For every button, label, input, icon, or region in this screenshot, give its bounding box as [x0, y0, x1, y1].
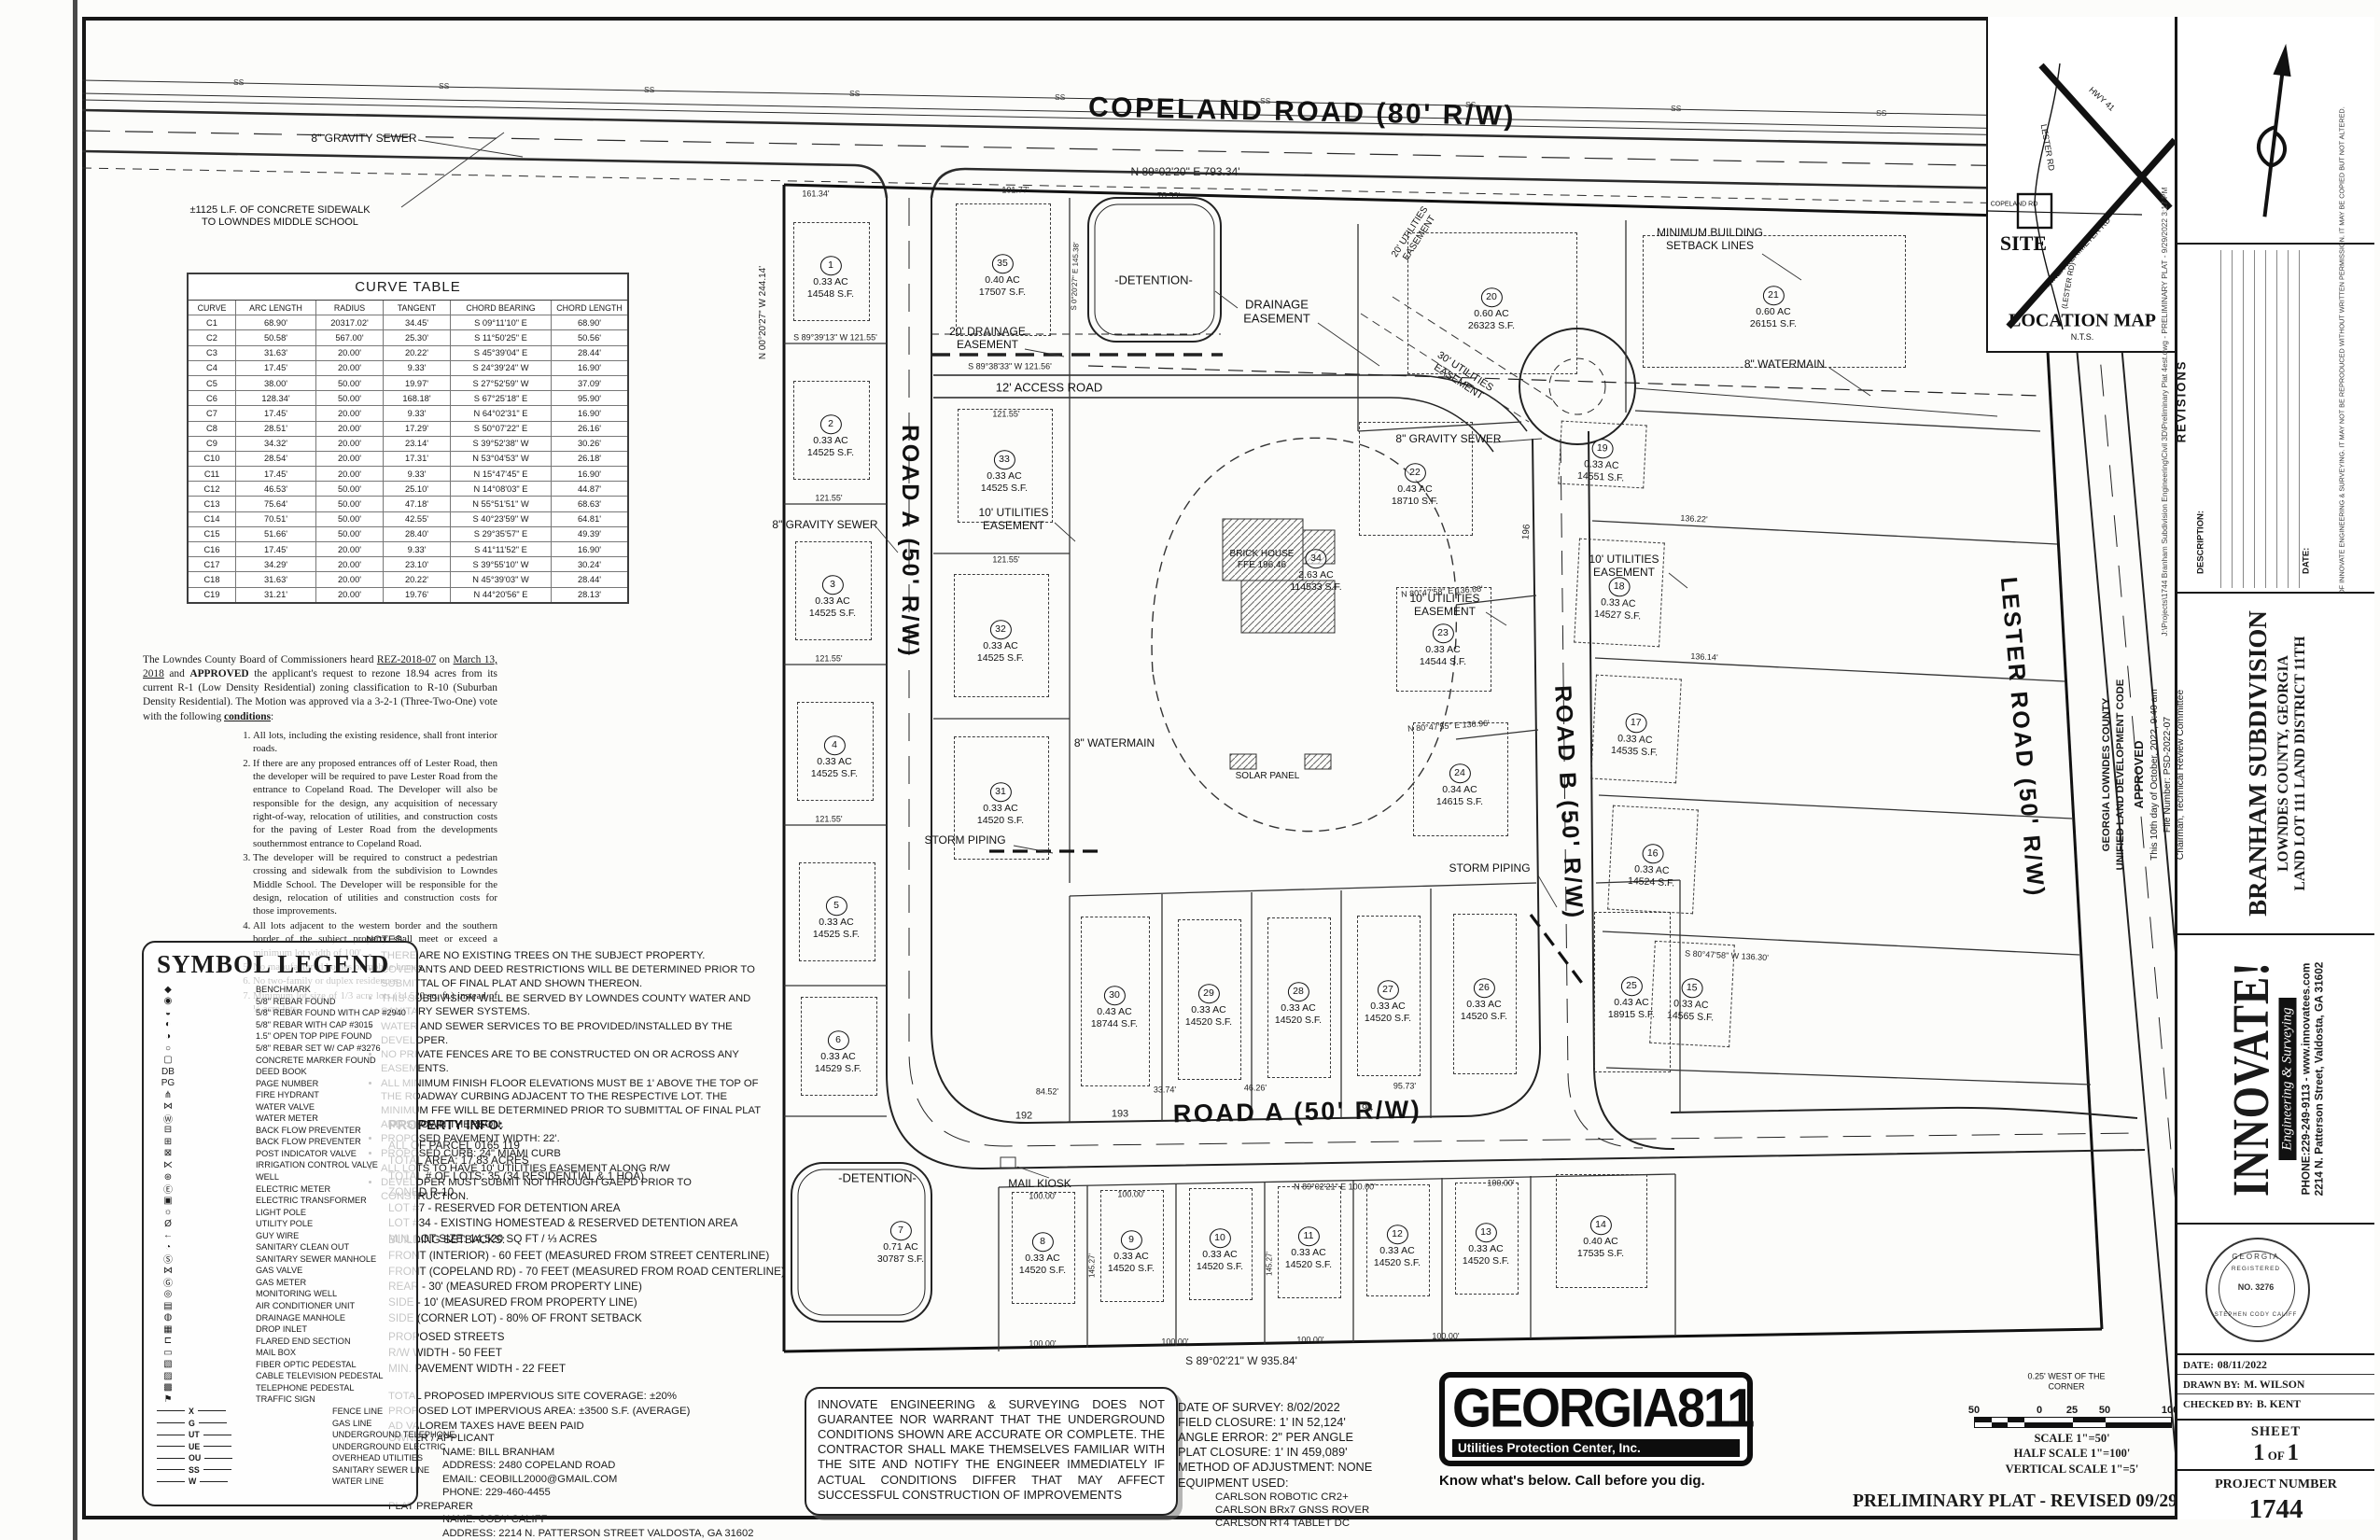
- plat-label: 0.25' WEST OF THE CORNER: [2028, 1371, 2106, 1391]
- lot-marker: 120.33 AC14520 S.F.: [1374, 1225, 1421, 1269]
- legend-item: ⋉IRRIGATION CONTROL VALVE: [157, 1159, 411, 1171]
- lot-number: 16: [1642, 844, 1664, 864]
- curve-table-row: C250.58'567.00'25.30'S 11°50'25" E50.56': [189, 329, 627, 344]
- seal-number: NO. 3276: [2238, 1282, 2275, 1292]
- scale-note: VERTICAL SCALE 1"=5': [1967, 1462, 2177, 1477]
- legend-item: ◎MONITORING WELL: [157, 1288, 411, 1300]
- legend-item: ☼LIGHT POLE: [157, 1206, 411, 1218]
- legend-item: ▨CABLE TELEVISION PEDESTAL: [157, 1370, 411, 1382]
- lot-acreage: 0.33 AC: [1461, 999, 1507, 1011]
- project-title-lines: BRANHAM SUBDIVISIONLOWNDES COUNTY, GEORG…: [2244, 595, 2309, 931]
- sanitary-sewer-mark: SS: [1876, 107, 1887, 117]
- lot-number: 14: [1589, 1215, 1611, 1235]
- lot-number: 28: [1287, 982, 1309, 1001]
- lot-square-feet: 14525 S.F.: [813, 929, 860, 941]
- plat-preparer-title: PLAT PREPARER: [388, 1500, 753, 1514]
- scale-note: HALF SCALE 1"=100': [1967, 1446, 2177, 1461]
- scale-bar: 5002550100 SCALE 1"=50'HALF SCALE 1"=100…: [1967, 1405, 2177, 1477]
- lot-marker: 170.33 AC14535 S.F.: [1611, 712, 1660, 759]
- dimension-label: 101.77': [1001, 186, 1029, 196]
- lot-square-feet: 114533 S.F.: [1290, 581, 1341, 594]
- lot-marker: 260.33 AC14520 S.F.: [1461, 978, 1507, 1023]
- lot-acreage: 0.33 AC: [811, 756, 858, 768]
- dimension-label: 121.55': [815, 654, 842, 665]
- plat-label: SOLAR PANEL: [1236, 771, 1300, 782]
- curve-table-row: C1028.54'20.00'17.31'N 53°04'53" W26.18': [189, 451, 627, 466]
- dimension-label: 100.00': [1432, 1332, 1459, 1342]
- legend-symbol-icon: DB: [157, 1067, 179, 1077]
- legend-symbol-icon: Ⓖ: [157, 1275, 179, 1289]
- plat-label: 10' UTILITIES EASEMENT: [979, 506, 1049, 532]
- revisions-date-header: DATE:: [2302, 257, 2312, 574]
- lot-marker: 10.33 AC14548 S.F.: [807, 256, 854, 301]
- lot-square-feet: 14615 S.F.: [1436, 796, 1483, 808]
- legend-item: ▤AIR CONDITIONER UNIT: [157, 1300, 411, 1312]
- legend-item: ◑1.5" OPEN TOP PIPE FOUND: [157, 1030, 411, 1043]
- dimension-label: N 89°02'20" E 793.34': [1130, 165, 1239, 178]
- georgia811-subtitle: Utilities Protection Center, Inc.: [1452, 1439, 1740, 1457]
- lot-marker: 250.43 AC18915 S.F.: [1608, 976, 1655, 1021]
- owner-lines: NAME: BILL BRANHAMADDRESS: 2480 COPELAND…: [442, 1446, 753, 1500]
- lot-square-feet: 14525 S.F.: [809, 608, 856, 620]
- checked-by-value: B. KENT: [2257, 1397, 2301, 1410]
- curve-table-row: C538.00'50.00'19.97'S 27°52'59" W37.09': [189, 375, 627, 390]
- plat-label: 8" GRAVITY SEWER: [1395, 432, 1501, 445]
- sanitary-sewer-mark: SS: [1671, 104, 1682, 113]
- lot-number: 6: [827, 1030, 848, 1050]
- lot-number: 12: [1386, 1225, 1407, 1244]
- legend-symbol-icon: ⋔: [157, 1090, 179, 1100]
- lot-number: 4: [823, 735, 845, 755]
- legend-item: ▭MAIL BOX: [157, 1347, 411, 1359]
- dimension-label: 193: [1112, 1109, 1128, 1121]
- drawn-by-label: DRAWN BY:: [2183, 1379, 2240, 1391]
- legend-symbol-icon: ◎: [157, 1289, 179, 1299]
- legend-symbol-icon: ⋈: [157, 1266, 179, 1276]
- legend-line-item: OUOVERHEAD UTILITIES: [157, 1452, 411, 1464]
- lot-acreage: 0.33 AC: [977, 640, 1024, 652]
- lot-square-feet: 14551 S.F.: [1577, 470, 1625, 484]
- curve-table-row: C1734.29'20.00'23.10'S 39°55'10" W30.24': [189, 556, 627, 571]
- lot-marker: 30.33 AC14525 S.F.: [809, 575, 856, 620]
- legend-item: ⓈSANITARY SEWER MANHOLE: [157, 1253, 411, 1266]
- plat-label: 20' DRAINAGE EASEMENT: [949, 325, 1026, 351]
- location-map-label: COPELAND RD: [1991, 202, 2038, 208]
- legend-symbol-icon: ▤: [157, 1301, 179, 1311]
- lot-square-feet: 14527 S.F.: [1594, 609, 1642, 623]
- sheet-label: SHEET: [2177, 1424, 2374, 1440]
- lot-marker: 350.40 AC17507 S.F.: [979, 254, 1026, 299]
- lot-number: 18: [1608, 577, 1631, 597]
- lot-marker: 200.60 AC26323 S.F.: [1468, 287, 1515, 332]
- lot-marker: 310.33 AC14520 S.F.: [977, 782, 1024, 827]
- curve-table: CURVE TABLE CURVEARC LENGTHRADIUSTANGENT…: [187, 273, 629, 604]
- lot-marker: 130.33 AC14520 S.F.: [1463, 1223, 1509, 1267]
- legend-symbol-icon: ⚑: [157, 1394, 179, 1405]
- scale-notes: SCALE 1"=50'HALF SCALE 1"=100'VERTICAL S…: [1967, 1431, 2177, 1477]
- plat-label: 8" WATERMAIN: [1744, 357, 1825, 371]
- lot-acreage: 0.34 AC: [1436, 784, 1483, 796]
- plat-label: 8" GRAVITY SEWER: [772, 518, 877, 531]
- checked-by-label: CHECKED BY:: [2183, 1399, 2253, 1410]
- legend-item: ◔SANITARY CLEAN OUT: [157, 1241, 411, 1253]
- lot-square-feet: 14520 S.F.: [1365, 1013, 1411, 1025]
- lot-square-feet: 30787 S.F.: [877, 1253, 924, 1266]
- legend-item: ◉5/8" REBAR FOUND: [157, 996, 411, 1008]
- legend-symbol-icon: ◑: [157, 1031, 179, 1042]
- lot-acreage: 2.63 AC: [1290, 569, 1341, 581]
- project-number-box: PROJECT NUMBER 1744: [2175, 1471, 2374, 1519]
- lot-acreage: 0.60 AC: [1468, 308, 1515, 320]
- lot-square-feet: 14565 S.F.: [1667, 1010, 1715, 1024]
- dimension-label: N 00°20'27" W 244.14': [758, 266, 769, 359]
- legend-line-item: XFENCE LINE: [157, 1406, 411, 1418]
- dimension-label: 121.55': [992, 410, 1019, 420]
- dimension-label: 33.74': [1154, 1085, 1176, 1096]
- legend-item: ØUTILITY POLE: [157, 1218, 411, 1230]
- lot-square-feet: 14520 S.F.: [1374, 1257, 1421, 1269]
- lot-number: 31: [989, 782, 1011, 802]
- legend-item: ⒼGAS METER: [157, 1277, 411, 1289]
- dimension-label: 46.26': [1244, 1084, 1267, 1094]
- plat-label: STORM PIPING: [924, 833, 1005, 847]
- lot-number: 30: [1103, 986, 1125, 1005]
- curve-table-row: C6128.34'50.00'168.18'S 67°25'18" E95.90…: [189, 390, 627, 405]
- dimension-label: 121.55': [992, 555, 1019, 566]
- scale-bar-graphic: [1974, 1417, 2172, 1428]
- seal-surveyor-name: STEPHEN CODY CALIFF: [2215, 1312, 2298, 1318]
- legend-symbol-icon: Ⓢ: [157, 1252, 179, 1266]
- lot-marker: 160.33 AC14524 S.F.: [1628, 843, 1677, 889]
- lot-acreage: 0.33 AC: [809, 595, 856, 608]
- curve-table-row: C1375.64'50.00'47.18'N 55°51'51" W68.63': [189, 496, 627, 511]
- plat-label: DRAINAGE EASEMENT: [1243, 298, 1310, 327]
- curve-table-row: C1831.63'20.00'20.22'N 45°39'03" W28.44': [189, 571, 627, 586]
- cad-file-path: J:\Projects\1744 Branham Subdivision Eng…: [2163, 411, 2165, 413]
- legend-item: ○5/8" REBAR SET W/ CAP #3276: [157, 1043, 411, 1055]
- date-label: DATE:: [2183, 1360, 2214, 1371]
- lot-number: 9: [1120, 1230, 1141, 1250]
- lot-acreage: 0.33 AC: [1365, 1001, 1411, 1013]
- curve-table-row: C1117.45'20.00'9.33'N 15°47'45" E16.90': [189, 466, 627, 481]
- legend-symbol-icon: ⋉: [157, 1160, 179, 1170]
- curve-table-row: C1617.45'20.00'9.33'S 41°11'52" E16.90': [189, 541, 627, 556]
- legend-symbol-icon: ▢: [157, 1055, 179, 1065]
- plat-label: MAIL KIOSK: [1008, 1177, 1071, 1190]
- legend-item: ⊞BACK FLOW PREVENTER: [157, 1136, 411, 1148]
- lot-acreage: 0.33 AC: [981, 470, 1028, 483]
- dimension-label: 192: [1015, 1111, 1032, 1123]
- legend-symbol-icon: ⊛: [157, 1172, 179, 1183]
- lot-marker: 220.43 AC18710 S.F.: [1392, 463, 1438, 508]
- lot-number: 25: [1620, 976, 1642, 996]
- plat-label: ±1125 L.F. OF CONCRETE SIDEWALK TO LOWND…: [189, 204, 370, 229]
- curve-table-row: C934.32'20.00'23.14'S 39°52'38" W30.26': [189, 436, 627, 451]
- lot-acreage: 0.33 AC: [1463, 1243, 1509, 1255]
- legend-symbol-icon: ◐: [157, 1019, 179, 1029]
- legend-item: ⊟BACK FLOW PREVENTER: [157, 1125, 411, 1137]
- georgia811-logo: GEORGIA811 Utilities Protection Center, …: [1439, 1372, 1753, 1489]
- lot-square-feet: 14520 S.F.: [1197, 1261, 1243, 1273]
- location-map-roads: [1988, 17, 2177, 353]
- lot-number: 2: [819, 414, 841, 434]
- lot-acreage: 0.33 AC: [1275, 1002, 1322, 1015]
- building-setbacks-title: BUILDING SETBACKS:: [388, 1232, 785, 1248]
- legend-item: ◒5/8" REBAR FOUND WITH CAP #2940: [157, 1007, 411, 1019]
- lot-acreage: 0.33 AC: [815, 1051, 861, 1063]
- georgia811-tagline: Know what's below. Call before you dig.: [1439, 1473, 1753, 1489]
- plat-label: 8" GRAVITY SEWER: [311, 132, 416, 145]
- georgia811-name: GEORGIA811: [1452, 1378, 1740, 1440]
- surveyor-seal-box: GEORGIA REGISTERED NO. 3276 STEPHEN CODY…: [2175, 1225, 2374, 1355]
- curve-table-row: C417.45'20.00'9.33'S 24°39'24" W16.90': [189, 360, 627, 375]
- lot-square-feet: 17535 S.F.: [1577, 1248, 1624, 1260]
- plat-sheet: 10.33 AC14548 S.F.20.33 AC14525 S.F.30.3…: [0, 0, 2380, 1540]
- lot-acreage: 0.33 AC: [1108, 1251, 1155, 1263]
- lot-square-feet: 14520 S.F.: [1285, 1259, 1332, 1271]
- legend-item: DBDEED BOOK: [157, 1066, 411, 1078]
- lot-acreage: 0.33 AC: [1185, 1004, 1232, 1016]
- dimension-label: 121.55': [815, 494, 842, 504]
- legend-symbol-icon: ○: [157, 1043, 179, 1054]
- lot-number: 8: [1031, 1232, 1053, 1252]
- lot-square-feet: 14525 S.F.: [977, 652, 1024, 665]
- lot-acreage: 0.33 AC: [977, 803, 1024, 815]
- lot-square-feet: 18744 S.F.: [1091, 1018, 1138, 1030]
- lot-number: 24: [1449, 763, 1470, 783]
- lot-marker: 210.60 AC26151 S.F.: [1750, 286, 1797, 330]
- legend-symbol-icon: ◆: [157, 985, 179, 995]
- legend-line-item: UTUNDERGROUND TELEPHONE: [157, 1429, 411, 1441]
- lot-number: 13: [1475, 1223, 1496, 1242]
- dimension-label: 145.27': [1087, 1253, 1096, 1278]
- lot-number: 19: [1591, 439, 1614, 459]
- revisions-title: REVISIONS: [2175, 233, 2189, 569]
- revisions-rule-lines: [2210, 250, 2300, 588]
- symbol-legend: SYMBOL LEGEND ◆BENCHMARK◉5/8" REBAR FOUN…: [142, 941, 418, 1506]
- lot-marker: 90.33 AC14520 S.F.: [1108, 1230, 1155, 1275]
- dimension-label: 100.00': [1161, 1337, 1188, 1348]
- building-setbacks-lines: FRONT (INTERIOR) - 60 FEET (MEASURED FRO…: [388, 1248, 785, 1326]
- legend-item: ⓌWATER METER: [157, 1113, 411, 1125]
- lot-number: 35: [991, 254, 1013, 273]
- plat-label: MINIMUM BUILDING SETBACK LINES: [1657, 226, 1763, 252]
- curve-table-row: C1551.66'50.00'28.40'S 29°35'57" E49.39': [189, 526, 627, 541]
- lot-acreage: 0.33 AC: [1420, 644, 1466, 656]
- lot-number: 21: [1762, 286, 1784, 305]
- lot-number: 22: [1404, 463, 1425, 483]
- legend-symbol-icon: ▣: [157, 1196, 179, 1206]
- plat-label: -DETENTION-: [1114, 273, 1193, 287]
- lot-square-feet: 14520 S.F.: [1463, 1255, 1509, 1267]
- lot-marker: 300.43 AC18744 S.F.: [1091, 986, 1138, 1030]
- legend-symbol-icon: Ø: [157, 1219, 179, 1229]
- plat-label: BRICK HOUSE FFE 196.46: [1230, 549, 1295, 571]
- legend-item: ◍DRAINAGE MANHOLE: [157, 1311, 411, 1323]
- legend-symbol-icon: ▧: [157, 1359, 179, 1369]
- lot-number: 27: [1377, 980, 1398, 1000]
- firm-phone-web: PHONE:229-249-9113 - www.innovatees.com: [2299, 939, 2312, 1219]
- lot-acreage: 0.40 AC: [979, 274, 1026, 287]
- legend-symbol-icon: ▦: [157, 1324, 179, 1335]
- building-setbacks-block: BUILDING SETBACKS: FRONT (INTERIOR) - 60…: [388, 1232, 785, 1326]
- legend-symbol-icon: ▩: [157, 1382, 179, 1393]
- legend-symbol-icon: Ⓔ: [157, 1182, 179, 1196]
- lot-marker: 280.33 AC14520 S.F.: [1275, 982, 1322, 1027]
- sanitary-sewer-mark: SS: [644, 85, 655, 94]
- lot-marker: 110.33 AC14520 S.F.: [1285, 1226, 1332, 1271]
- drawn-by-value: M. WILSON: [2244, 1378, 2304, 1391]
- lot-marker: 180.33 AC14527 S.F.: [1594, 576, 1644, 623]
- lot-number: 3: [821, 575, 843, 595]
- legend-symbol-icon: ⋈: [157, 1101, 179, 1112]
- dimension-label: 100.00': [1487, 1179, 1514, 1189]
- lot-acreage: 0.33 AC: [1019, 1253, 1066, 1265]
- legend-symbol-icon: ⊞: [157, 1137, 179, 1147]
- curve-table-row: C1931.21'20.00'19.76'N 44°20'56" E28.13': [189, 587, 627, 602]
- legend-symbol-icon: ⊟: [157, 1125, 179, 1135]
- lot-acreage: 0.33 AC: [807, 435, 854, 447]
- dimension-label: 100.00': [1029, 1339, 1056, 1350]
- revisions-description-header: DESCRIPTION:: [2196, 257, 2206, 574]
- legend-symbol-icon: ⊏: [157, 1336, 179, 1346]
- lot-square-feet: 14520 S.F.: [1019, 1265, 1066, 1277]
- curve-table-header: CURVEARC LENGTHRADIUSTANGENTCHORD BEARIN…: [189, 301, 627, 315]
- firm-address: 2214 N. Patterson Street, Valdosta, GA 3…: [2312, 939, 2325, 1219]
- lot-marker: 230.33 AC14544 S.F.: [1420, 623, 1466, 668]
- lot-marker: 100.33 AC14520 S.F.: [1197, 1228, 1243, 1273]
- project-title-box: BRANHAM SUBDIVISIONLOWNDES COUNTY, GEORG…: [2175, 594, 2374, 935]
- legend-item: ⒺELECTRIC METER: [157, 1183, 411, 1195]
- legend-item: ←GUY WIRE: [157, 1229, 411, 1241]
- legend-symbol-icon: ◍: [157, 1312, 179, 1323]
- dimension-label: N 89°02'21" E 100.00': [1294, 1183, 1376, 1193]
- lot-square-feet: 26151 S.F.: [1750, 318, 1797, 330]
- curve-table-row: C717.45'20.00'9.33'N 64°02'31" E16.90': [189, 405, 627, 420]
- lot-number: 34: [1305, 549, 1326, 568]
- lot-square-feet: 18710 S.F.: [1392, 496, 1438, 508]
- lot-marker: 60.33 AC14529 S.F.: [815, 1030, 861, 1075]
- plat-label: 12' ACCESS ROAD: [996, 380, 1102, 394]
- legend-item: ⋈GAS VALVE: [157, 1265, 411, 1277]
- lot-marker: 240.34 AC14615 S.F.: [1436, 763, 1483, 808]
- lot-number: 17: [1625, 713, 1647, 734]
- dimension-label: S 89°39'13" W 121.55': [793, 333, 877, 343]
- legend-item: PGPAGE NUMBER: [157, 1077, 411, 1089]
- dimension-label: 100.00': [1296, 1336, 1323, 1346]
- legend-symbol-icon: ▭: [157, 1348, 179, 1358]
- lot-number: 7: [889, 1221, 911, 1240]
- lot-number: 11: [1297, 1226, 1319, 1246]
- legend-item: ▢CONCRETE MARKER FOUND: [157, 1054, 411, 1066]
- plat-label: STORM PIPING: [1449, 861, 1530, 875]
- sanitary-sewer-mark: SS: [439, 81, 450, 91]
- lot-acreage: 0.33 AC: [1374, 1245, 1421, 1257]
- lot-number: 29: [1197, 984, 1219, 1003]
- dimension-label: 100.00': [1117, 1190, 1144, 1200]
- curve-table-title: CURVE TABLE: [189, 274, 627, 301]
- survey-lines: DATE OF SURVEY: 8/02/2022FIELD CLOSURE: …: [1178, 1400, 1462, 1491]
- lot-marker: 140.40 AC17535 S.F.: [1577, 1215, 1624, 1260]
- summary-lines: TOTAL PROPOSED IMPERVIOUS SITE COVERAGE:…: [388, 1389, 690, 1435]
- scale-note: SCALE 1"=50': [1967, 1431, 2177, 1446]
- project-number-label: PROJECT NUMBER: [2177, 1477, 2374, 1492]
- lot-square-feet: 14548 S.F.: [807, 288, 854, 301]
- dimension-label: 136.22': [1680, 513, 1708, 525]
- lot-marker: 80.33 AC14520 S.F.: [1019, 1232, 1066, 1277]
- lot-square-feet: 14520 S.F.: [1275, 1015, 1322, 1027]
- dimension-label: 161.34': [802, 189, 829, 200]
- dimension-label: 84.52': [1036, 1087, 1058, 1098]
- legend-item: ▣ELECTRIC TRANSFORMER: [157, 1195, 411, 1207]
- lot-square-feet: 17507 S.F.: [979, 287, 1026, 299]
- sheet-title: PRELIMINARY PLAT - REVISED 09/29/2022: [1853, 1491, 2219, 1512]
- lot-marker: 20.33 AC14525 S.F.: [807, 414, 854, 459]
- impervious-summary-block: TOTAL PROPOSED IMPERVIOUS SITE COVERAGE:…: [388, 1389, 690, 1435]
- lot-number: 32: [989, 620, 1011, 639]
- dimension-label: 145.27': [1265, 1252, 1273, 1276]
- legend-line-item: GGAS LINE: [157, 1417, 411, 1429]
- legend-item: ⋔FIRE HYDRANT: [157, 1089, 411, 1101]
- seal-registered: REGISTERED: [2232, 1266, 2280, 1272]
- lot-square-feet: 18915 S.F.: [1608, 1009, 1655, 1021]
- lot-number: 23: [1432, 623, 1453, 643]
- sanitary-sewer-mark: SS: [849, 89, 861, 98]
- legend-symbol-icon: ◉: [157, 996, 179, 1006]
- legend-item: ⊏FLARED END SECTION: [157, 1335, 411, 1347]
- property-info-lines: ALL OF PARCEL 0165 119TOTAL AREA: 17.83 …: [388, 1138, 738, 1247]
- lot-acreage: 0.33 AC: [813, 917, 860, 929]
- legend-symbol-icon: ⊠: [157, 1148, 179, 1158]
- location-map: HWY 41LESTER RDCOPELAND RDINNER PERIMETE…: [1986, 17, 2175, 353]
- lot-number: 1: [819, 256, 841, 275]
- dimension-label: S 89°38'33" W 121.56': [968, 362, 1052, 372]
- legend-item: ▩TELEPHONE PEDESTAL: [157, 1382, 411, 1394]
- lot-marker: 330.33 AC14525 S.F.: [981, 450, 1028, 495]
- lot-marker: 290.33 AC14520 S.F.: [1185, 984, 1232, 1029]
- property-info-block: PROPERTY INFO: ALL OF PARCEL 0165 119TOT…: [388, 1116, 738, 1247]
- lot-acreage: 0.43 AC: [1608, 997, 1655, 1009]
- lot-number: 5: [825, 896, 847, 916]
- lot-marker: 40.33 AC14525 S.F.: [811, 735, 858, 780]
- lot-acreage: 0.60 AC: [1750, 306, 1797, 318]
- legend-symbol-icon: ←: [157, 1230, 179, 1240]
- lot-square-feet: 14525 S.F.: [807, 447, 854, 459]
- dimension-label: S 89°02'21" W 935.84': [1185, 1354, 1297, 1367]
- legend-symbol-icon: ◒: [157, 1008, 179, 1018]
- legend-item: ⊠POST INDICATOR VALVE: [157, 1148, 411, 1160]
- curve-table-row: C1246.53'50.00'25.10'N 14°08'03" E44.87': [189, 481, 627, 496]
- date-value: 08/11/2022: [2218, 1358, 2267, 1371]
- location-map-label: N.T.S.: [2071, 332, 2094, 342]
- lot-number: 15: [1681, 978, 1703, 999]
- sanitary-sewer-mark: SS: [233, 77, 245, 87]
- approval-paragraph: The Lowndes County Board of Commissioner…: [143, 653, 497, 724]
- lot-marker: 342.63 AC114533 S.F.: [1290, 549, 1341, 594]
- survey-equipment: CARLSON ROBOTIC CR2+CARLSON BRx7 GNSS RO…: [1215, 1491, 1462, 1531]
- lot-square-feet: 14544 S.F.: [1420, 656, 1466, 668]
- plat-label: ROAD A (50' R/W): [1173, 1096, 1422, 1130]
- notes-title: NOTES:: [366, 933, 762, 947]
- legend-symbol-icon: Ⓦ: [157, 1112, 179, 1126]
- legend-item: ⋈WATER VALVE: [157, 1100, 411, 1113]
- lot-number: 26: [1473, 978, 1494, 998]
- plat-label: -DETENTION-: [838, 1170, 917, 1184]
- plat-label: ROAD A (50' R/W): [895, 425, 923, 658]
- lot-number: 33: [993, 450, 1015, 469]
- lot-acreage: 0.43 AC: [1392, 483, 1438, 496]
- legend-line-item: UEUNDERGROUND ELECTRIC: [157, 1440, 411, 1452]
